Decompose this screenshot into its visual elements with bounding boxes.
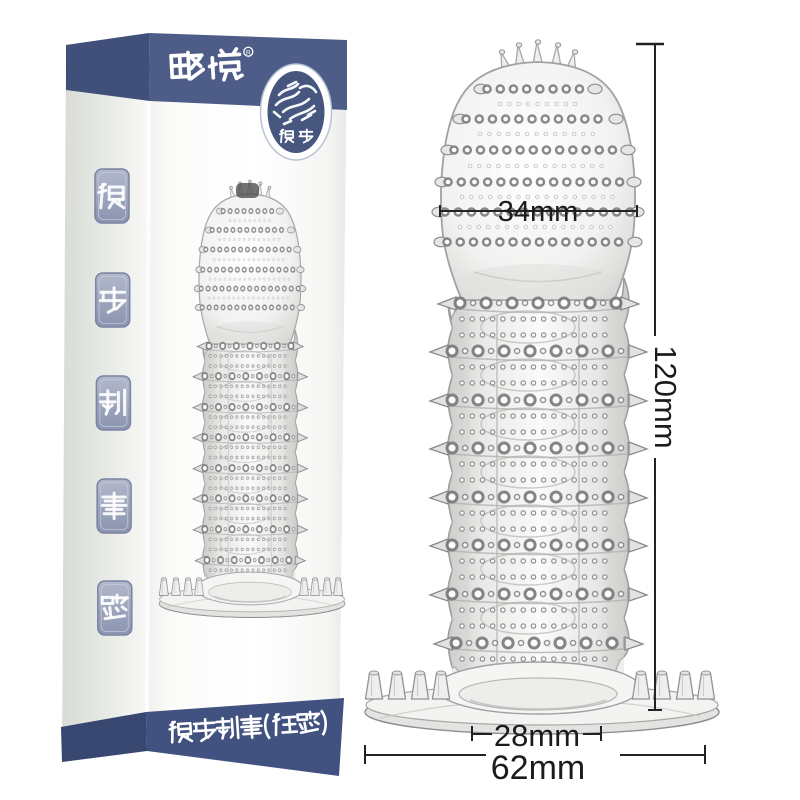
svg-text:120mm: 120mm	[648, 345, 683, 448]
svg-text:R: R	[246, 50, 251, 57]
svg-text:34mm: 34mm	[498, 196, 579, 228]
svg-text:62mm: 62mm	[491, 749, 585, 787]
svg-text:28mm: 28mm	[494, 718, 580, 753]
